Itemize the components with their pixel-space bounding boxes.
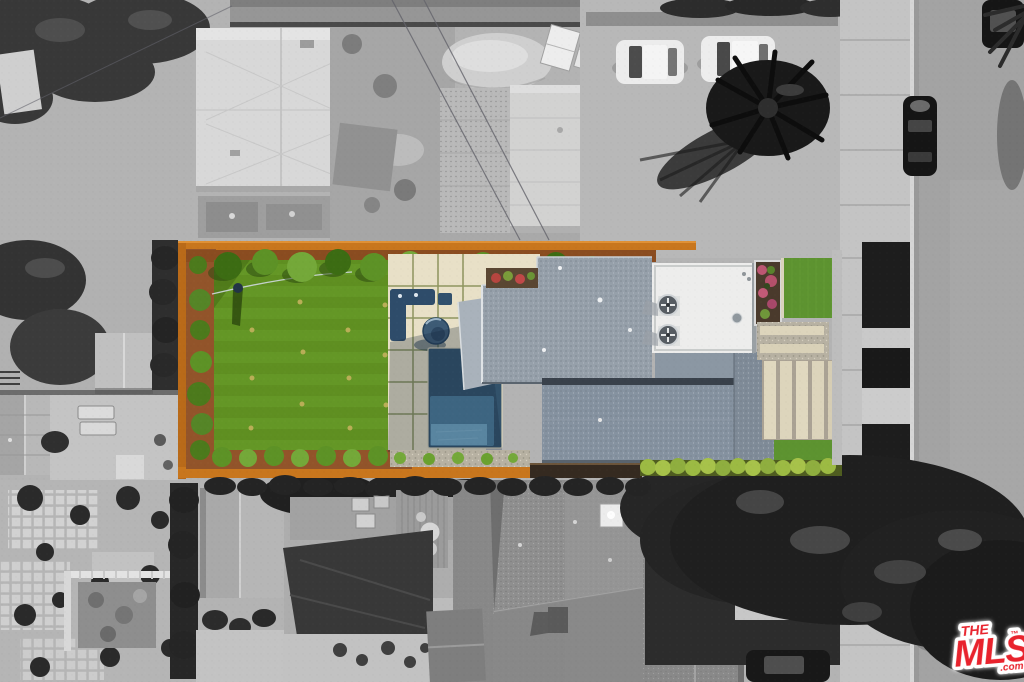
wm-tm: ™ [1010,629,1019,639]
photo-grain [0,0,1024,682]
wm-dotcom: .com [1000,661,1024,674]
aerial-photo: THE MLS ™ .com THE MLS ™ .com [0,0,1024,682]
